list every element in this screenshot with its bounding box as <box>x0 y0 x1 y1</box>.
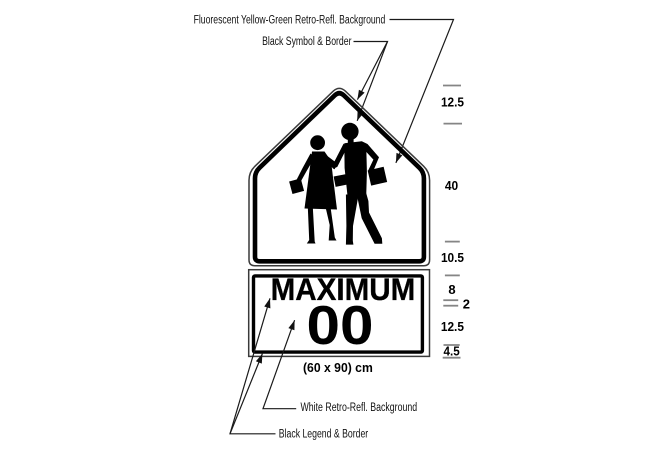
svg-text:10.5: 10.5 <box>441 250 464 265</box>
svg-text:00: 00 <box>307 295 374 356</box>
svg-text:12.5: 12.5 <box>441 319 464 334</box>
svg-text:Fluorescent Yellow-Green Retro: Fluorescent Yellow-Green Retro-Refl. Bac… <box>194 15 386 27</box>
svg-text:(60 x 90) cm: (60 x 90) cm <box>303 360 373 375</box>
svg-text:2: 2 <box>463 296 470 311</box>
svg-text:4.5: 4.5 <box>444 343 460 358</box>
svg-text:40: 40 <box>445 178 458 193</box>
svg-text:White Retro-Refl. Background: White Retro-Refl. Background <box>301 402 418 414</box>
svg-text:Black Symbol & Border: Black Symbol & Border <box>262 36 352 48</box>
svg-text:Black Legend & Border: Black Legend & Border <box>279 428 369 440</box>
svg-text:12.5: 12.5 <box>441 94 464 109</box>
svg-text:8: 8 <box>448 282 455 297</box>
